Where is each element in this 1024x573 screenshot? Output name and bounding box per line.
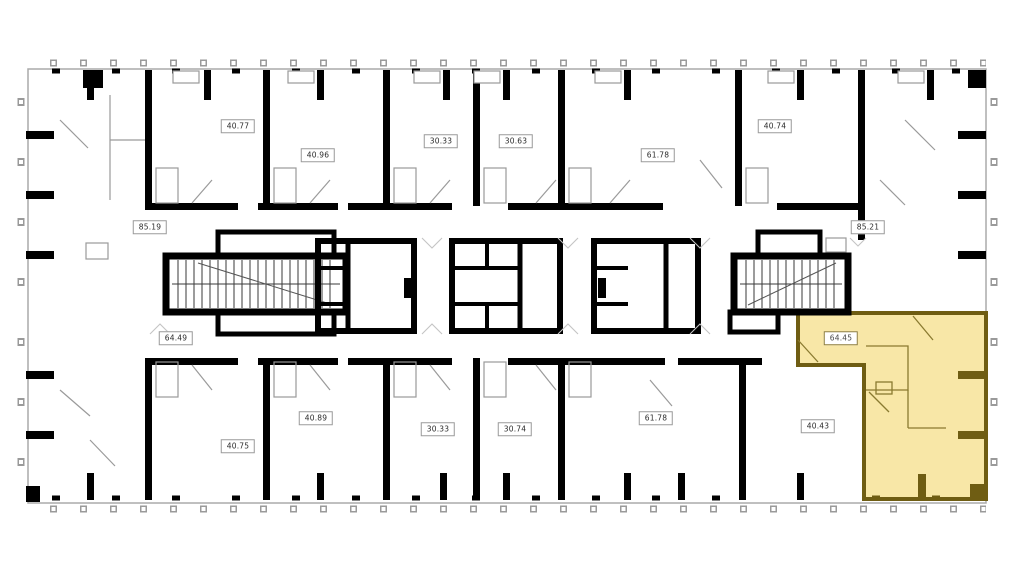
elevator-block-c	[594, 241, 698, 331]
unit-area-label: 40.43	[801, 419, 835, 433]
selected-unit-area-label[interactable]: 64.45	[824, 331, 858, 345]
unit-area-label: 30.63	[499, 134, 533, 148]
unit-area-label: 40.74	[758, 119, 792, 133]
elevator-block-b	[452, 241, 560, 331]
unit-area-label: 85.21	[851, 220, 885, 234]
unit-area-label: 40.77	[221, 119, 255, 133]
unit-area-label: 40.96	[301, 148, 335, 162]
unit-area-label: 61.78	[641, 148, 675, 162]
unit-area-label: 64.49	[159, 331, 193, 345]
unit-area-label: 30.74	[498, 422, 532, 436]
floor-plan-page: 40.77 40.96 30.33 30.63 61.78 40.74 85.1…	[0, 0, 1024, 573]
floor-plan-drawing	[0, 0, 1024, 573]
unit-area-label: 30.33	[424, 134, 458, 148]
unit-area-label: 61.78	[639, 411, 673, 425]
unit-area-label: 30.33	[421, 422, 455, 436]
unit-area-label: 40.89	[299, 411, 333, 425]
unit-area-label: 40.75	[221, 439, 255, 453]
unit-area-label: 85.19	[133, 220, 167, 234]
